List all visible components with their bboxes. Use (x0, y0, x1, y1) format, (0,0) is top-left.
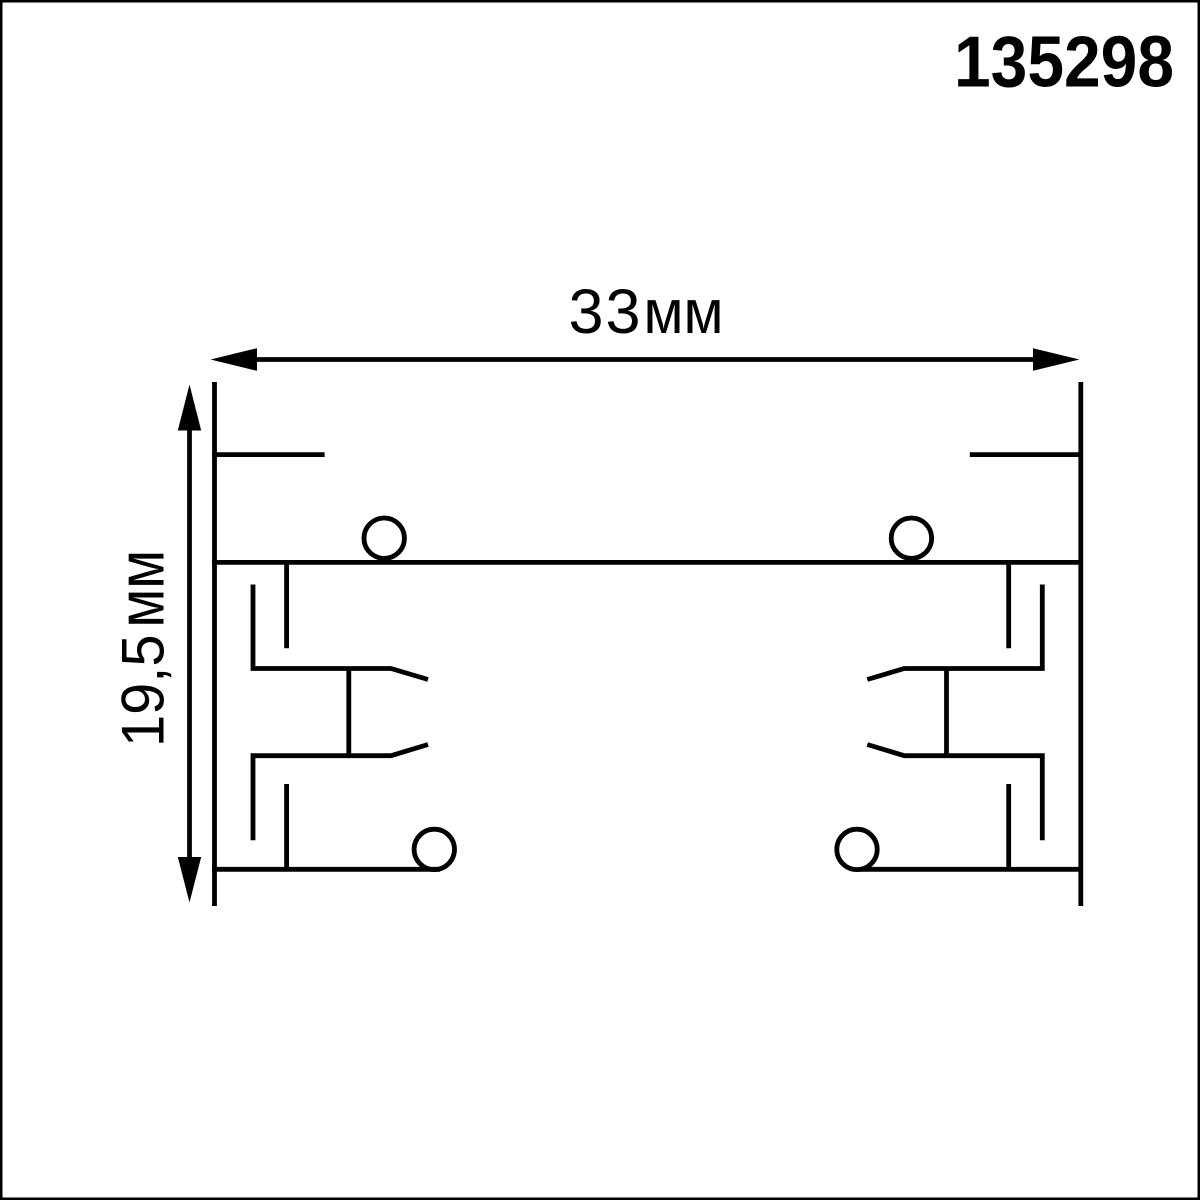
svg-text:33: 33 (569, 277, 643, 347)
svg-text:19,5: 19,5 (109, 635, 176, 748)
svg-text:мм: мм (103, 550, 177, 628)
svg-text:135298: 135298 (954, 23, 1174, 103)
svg-text:мм: мм (644, 278, 724, 347)
